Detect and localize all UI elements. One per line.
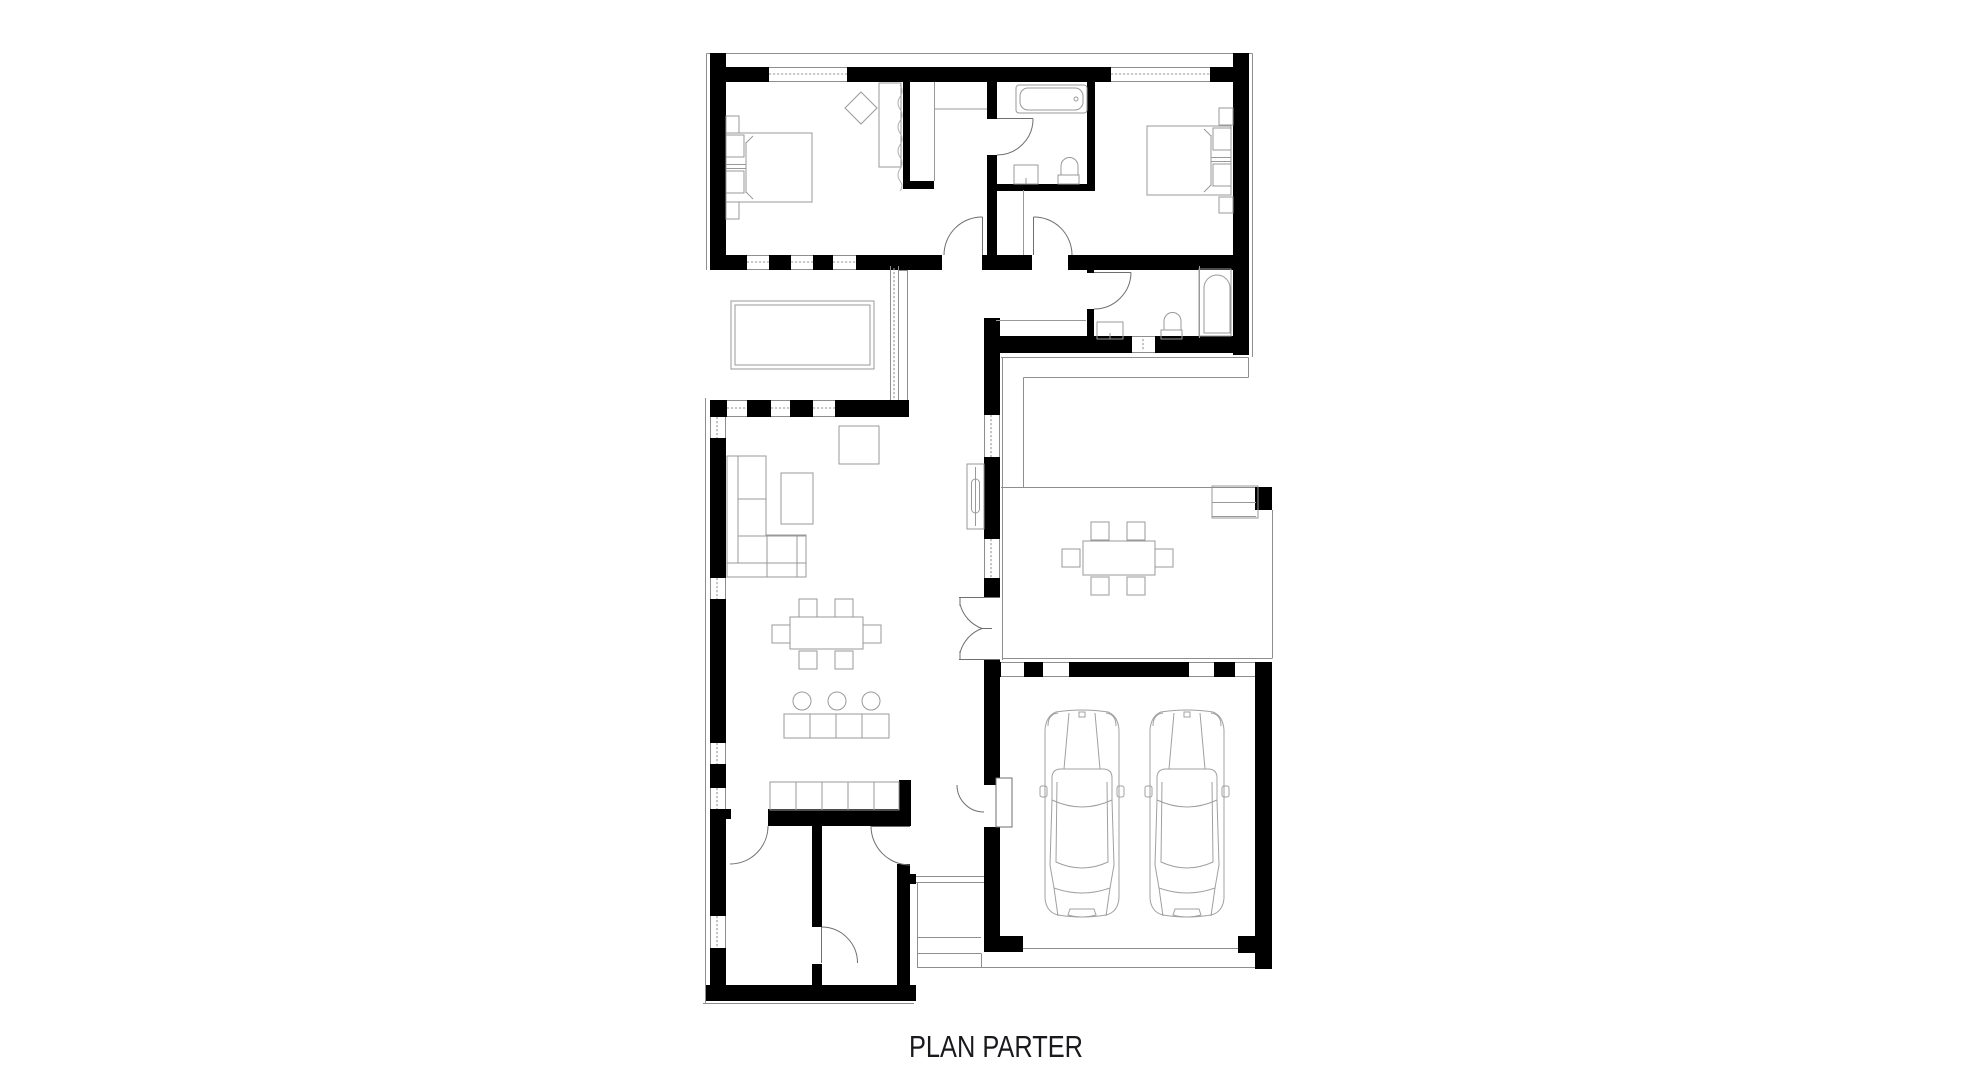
- svg-text:PLAN PARTER: PLAN PARTER: [909, 1029, 1083, 1064]
